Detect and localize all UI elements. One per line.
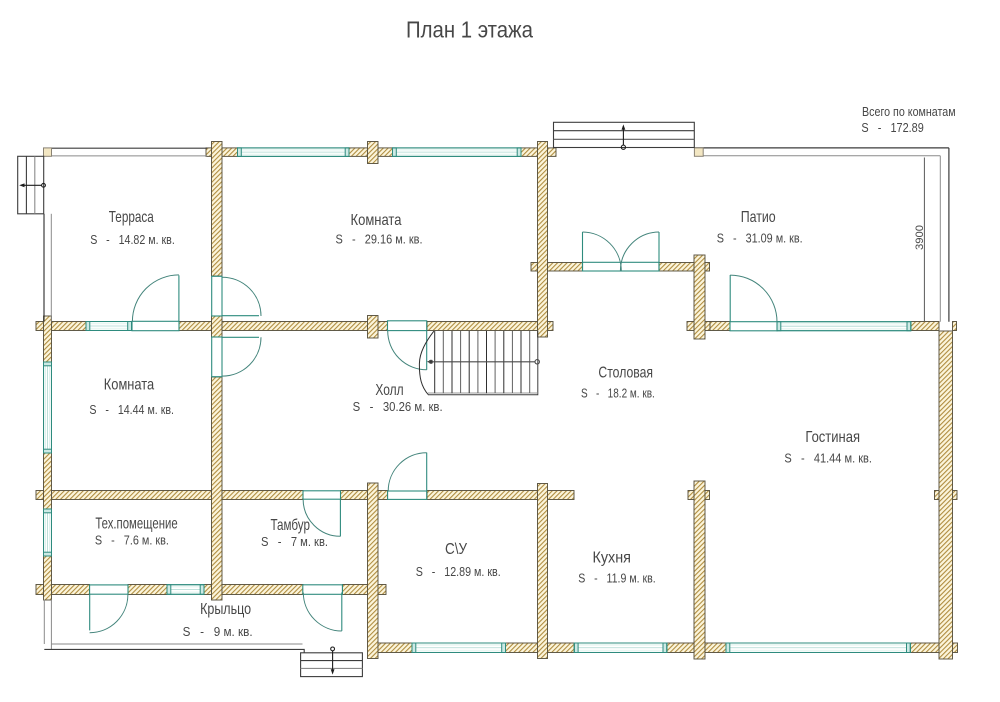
svg-text:S - 12.89 м. кв.: S - 12.89 м. кв.	[416, 565, 501, 579]
svg-text:Патио: Патио	[741, 209, 776, 226]
svg-text:Крыльцо: Крыльцо	[200, 601, 251, 618]
svg-text:S - 7.6 м. кв.: S - 7.6 м. кв.	[95, 534, 169, 548]
svg-text:S - 30.26 м. кв.: S - 30.26 м. кв.	[353, 400, 443, 414]
svg-text:S - 14.44 м. кв.: S - 14.44 м. кв.	[89, 403, 174, 417]
svg-text:План 1 этажа: План 1 этажа	[406, 17, 533, 43]
svg-text:Комната: Комната	[351, 212, 402, 229]
svg-text:Комната: Комната	[104, 377, 154, 394]
svg-text:Всего по комнатам: Всего по комнатам	[862, 105, 956, 119]
svg-text:S - 11.9 м. кв.: S - 11.9 м. кв.	[578, 572, 656, 586]
svg-text:S - 9 м. кв.: S - 9 м. кв.	[183, 625, 253, 639]
svg-text:Тех.помещение: Тех.помещение	[95, 516, 177, 533]
svg-text:S - 14.82 м. кв.: S - 14.82 м. кв.	[90, 233, 175, 247]
svg-text:S - 41.44 м. кв.: S - 41.44 м. кв.	[784, 451, 872, 465]
svg-text:Терраса: Терраса	[109, 209, 154, 226]
svg-text:Кухня: Кухня	[592, 550, 631, 567]
svg-text:S - 31.09 м. кв.: S - 31.09 м. кв.	[717, 232, 803, 246]
svg-text:S - 18.2 м. кв.: S - 18.2 м. кв.	[581, 386, 655, 400]
svg-text:3900: 3900	[914, 225, 926, 250]
svg-text:Гостиная: Гостиная	[805, 429, 860, 446]
svg-text:Столовая: Столовая	[598, 365, 653, 382]
svg-text:Холл: Холл	[375, 382, 403, 399]
svg-text:Тамбур: Тамбур	[270, 517, 310, 534]
svg-text:S - 29.16 м. кв.: S - 29.16 м. кв.	[336, 233, 423, 247]
svg-text:S - 7 м. кв.: S - 7 м. кв.	[261, 535, 328, 549]
svg-text:S - 172.89: S - 172.89	[861, 121, 923, 135]
svg-text:С\У: С\У	[445, 541, 468, 558]
